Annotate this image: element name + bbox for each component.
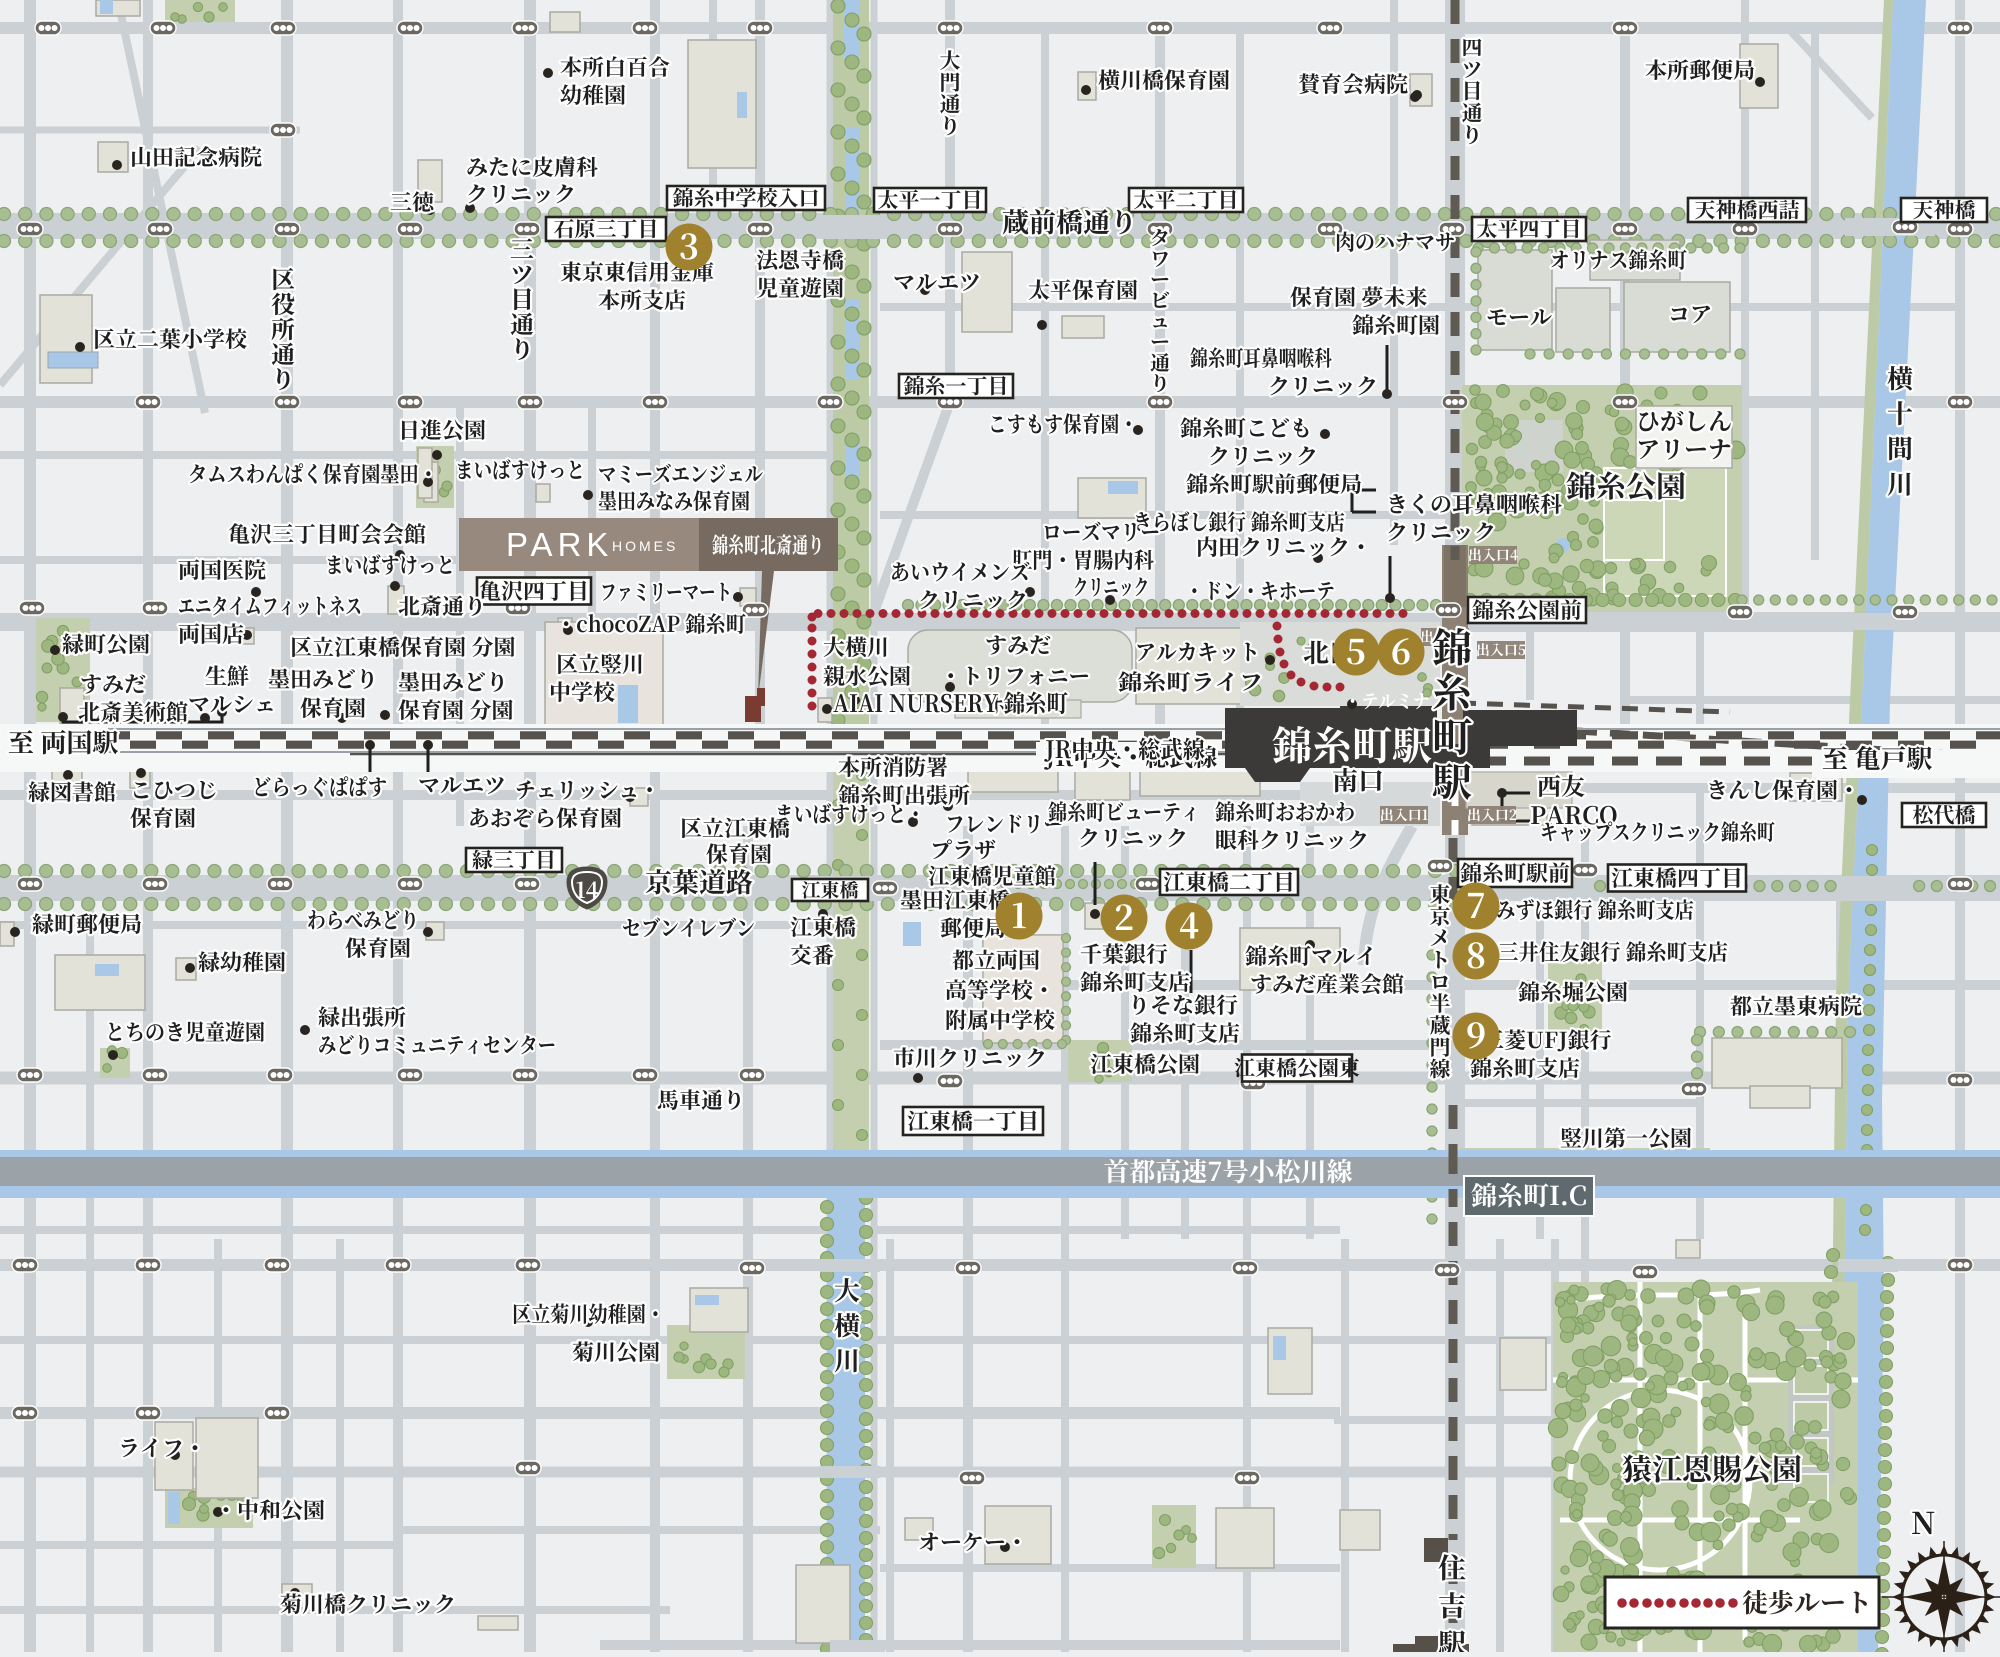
svg-text:緑町郵便局: 緑町郵便局 (32, 908, 142, 939)
svg-text:こひつじ: こひつじ (130, 774, 218, 805)
svg-text:錦糸町ライフ: 錦糸町ライフ (1118, 666, 1263, 697)
svg-text:本所郵便局: 本所郵便局 (1645, 54, 1755, 85)
svg-text:竪川第一公園: 竪川第一公園 (1560, 1122, 1692, 1153)
svg-text:14: 14 (575, 874, 598, 905)
svg-text:太平二丁目: 太平二丁目 (1134, 185, 1239, 215)
svg-text:タワービュー通り: タワービュー通り (1150, 222, 1170, 397)
svg-text:マルエツ: マルエツ (893, 266, 981, 297)
svg-text:アリーナ: アリーナ (1636, 430, 1732, 465)
svg-text:眼科クリニック: 眼科クリニック (1215, 824, 1369, 855)
svg-text:墨田江東橋: 墨田江東橋 (900, 884, 1010, 915)
svg-text:錦糸公園前: 錦糸公園前 (1472, 594, 1582, 625)
svg-text:すみだ産業会館: すみだ産業会館 (1250, 968, 1404, 999)
svg-text:菊川公園: 菊川公園 (572, 1336, 660, 1367)
svg-text:とちのき児童遊園: とちのき児童遊園 (105, 1016, 265, 1047)
svg-text:三ツ目通り: 三ツ目通り (510, 230, 534, 365)
svg-text:わらべみどり: わらべみどり (307, 904, 419, 935)
svg-text:コア: コア (1668, 298, 1712, 329)
svg-text:法恩寺橋: 法恩寺橋 (756, 244, 844, 275)
svg-text:あおぞら保育園: あおぞら保育園 (468, 802, 622, 833)
svg-text:クリニック: クリニック (466, 178, 576, 209)
svg-text:江東橋公園: 江東橋公園 (1090, 1048, 1200, 1079)
svg-text:オーケー・: オーケー・ (918, 1526, 1028, 1557)
svg-text:大門通り: 大門通り (940, 45, 961, 141)
svg-text:緑三丁目: 緑三丁目 (472, 845, 556, 875)
svg-text:こすもす保育園・: こすもす保育園・ (988, 408, 1138, 439)
svg-text:横十間川: 横十間川 (1887, 359, 1914, 501)
svg-text:附属中学校: 附属中学校 (945, 1004, 1056, 1035)
svg-text:賛育会病院: 賛育会病院 (1298, 68, 1408, 99)
svg-text:両国店: 両国店 (178, 618, 244, 649)
svg-text:・テルミナ: ・テルミナ (1344, 687, 1430, 714)
svg-text:緑出張所: 緑出張所 (318, 1001, 406, 1032)
svg-text:まいばすけっと: まいばすけっと (455, 454, 585, 485)
svg-text:至 亀戸駅: 至 亀戸駅 (1822, 739, 1933, 776)
svg-text:三菱UFJ銀行: 三菱UFJ銀行 (1482, 1024, 1612, 1055)
svg-text:大横川: 大横川 (823, 631, 889, 662)
svg-text:出入口5: 出入口5 (1476, 640, 1526, 660)
svg-text:2: 2 (1114, 891, 1134, 940)
svg-text:錦糸町こども: 錦糸町こども (1180, 412, 1312, 443)
svg-text:ライフ・: ライフ・ (118, 1432, 206, 1463)
svg-text:三井住友銀行 錦糸町支店: 三井住友銀行 錦糸町支店 (1498, 936, 1728, 967)
svg-text:保育園: 保育園 (345, 932, 411, 963)
svg-text:錦糸中学校入口: 錦糸中学校入口 (673, 183, 820, 213)
svg-text:江東橋公園東: 江東橋公園東 (1234, 1053, 1360, 1083)
svg-text:墨田みどり: 墨田みどり (398, 666, 508, 697)
svg-text:墨田みなみ保育園: 墨田みなみ保育園 (598, 485, 750, 516)
svg-text:きくの耳鼻咽喉科: きくの耳鼻咽喉科 (1386, 488, 1562, 519)
svg-text:錦糸町I.C: 錦糸町I.C (1471, 1176, 1587, 1213)
svg-text:錦糸町マルイ: 錦糸町マルイ (1245, 940, 1377, 971)
svg-text:まいばすけっと・: まいばすけっと・ (775, 798, 925, 829)
svg-text:馬車通り: 馬車通り (657, 1084, 745, 1115)
svg-text:クリニック: クリニック (1268, 370, 1378, 401)
svg-text:区立二葉小学校: 区立二葉小学校 (93, 323, 248, 354)
svg-text:太平四丁目: 太平四丁目 (1477, 214, 1582, 244)
svg-text:6: 6 (1391, 625, 1411, 674)
svg-text:猿江恩賜公園: 猿江恩賜公園 (1622, 1445, 1802, 1489)
svg-text:きんし保育園・: きんし保育園・ (1706, 774, 1860, 805)
svg-text:南口: 南口 (1332, 761, 1384, 798)
svg-text:緑幼稚園: 緑幼稚園 (198, 946, 286, 977)
svg-text:4: 4 (1179, 899, 1199, 948)
svg-text:太平一丁目: 太平一丁目 (878, 185, 983, 215)
svg-text:首都高速7号小松川線: 首都高速7号小松川線 (1103, 1152, 1352, 1189)
svg-text:あいウイメンズ: あいウイメンズ (890, 556, 1030, 587)
svg-text:徒歩ルート: 徒歩ルート (1742, 1583, 1872, 1620)
svg-text:至 両国駅: 至 両国駅 (8, 723, 119, 760)
svg-text:・中和公園: ・中和公園 (215, 1494, 325, 1525)
svg-text:・chocoZAP 錦糸町: ・chocoZAP 錦糸町 (556, 608, 746, 639)
svg-text:山田記念病院: 山田記念病院 (130, 141, 262, 172)
svg-text:3: 3 (679, 220, 699, 269)
svg-text:東京メトロ半蔵門線: 東京メトロ半蔵門線 (1430, 879, 1452, 1084)
svg-text:7: 7 (1466, 879, 1486, 928)
svg-text:出入口4: 出入口4 (1468, 545, 1518, 565)
svg-text:モール: モール (1486, 301, 1552, 332)
svg-text:両国医院: 両国医院 (178, 554, 266, 585)
svg-text:5: 5 (1346, 625, 1366, 674)
svg-text:都立両国: 都立両国 (952, 944, 1040, 975)
svg-text:錦糸町耳鼻咽喉科: 錦糸町耳鼻咽喉科 (1190, 342, 1332, 373)
svg-text:区立竪川: 区立竪川 (556, 648, 644, 679)
svg-text:江東橋一丁目: 江東橋一丁目 (907, 1105, 1039, 1136)
svg-text:出入口1: 出入口1 (1380, 805, 1429, 825)
svg-text:菊川橋クリニック: 菊川橋クリニック (280, 1588, 456, 1619)
svg-text:オリナス錦糸町: オリナス錦糸町 (1550, 244, 1687, 275)
svg-text:江東橋四丁目: 江東橋四丁目 (1611, 862, 1743, 893)
svg-text:みずほ銀行 錦糸町支店: みずほ銀行 錦糸町支店 (1496, 894, 1694, 925)
svg-text:錦糸町北斎通り: 錦糸町北斎通り (712, 529, 824, 560)
svg-text:エニタイムフィットネス: エニタイムフィットネス (178, 590, 362, 621)
svg-text:交番: 交番 (790, 939, 834, 970)
svg-text:どらっぐぱぱす: どらっぐぱぱす (252, 771, 387, 802)
svg-text:保育園 分園: 保育園 分園 (398, 694, 514, 725)
svg-text:区立菊川幼稚園・: 区立菊川幼稚園・ (512, 1298, 665, 1329)
svg-text:錦糸町駅: 錦糸町駅 (1430, 617, 1474, 808)
svg-text:緑図書館: 緑図書館 (28, 776, 116, 807)
svg-text:幼稚園: 幼稚園 (560, 79, 626, 110)
svg-text:クリニック: クリニック (1073, 571, 1149, 602)
svg-text:チェリッシュ・: チェリッシュ・ (515, 774, 660, 805)
svg-text:錦糸一丁目: 錦糸一丁目 (904, 371, 1009, 401)
svg-text:錦糸町支店: 錦糸町支店 (1130, 1017, 1240, 1048)
svg-text:錦糸堀公園: 錦糸堀公園 (1518, 976, 1628, 1007)
svg-text:クリニック: クリニック (1078, 822, 1188, 853)
svg-text:クリニック: クリニック (1208, 440, 1318, 471)
svg-text:PARK: PARK (506, 526, 613, 563)
svg-text:墨田みどり: 墨田みどり (268, 663, 378, 694)
svg-text:JR中央・総武線: JR中央・総武線 (1044, 730, 1205, 765)
svg-text:9: 9 (1466, 1009, 1486, 1058)
svg-text:内田クリニック・: 内田クリニック・ (1196, 531, 1372, 562)
svg-text:すみだ: すみだ (80, 668, 146, 699)
svg-text:HOMES: HOMES (612, 538, 678, 554)
svg-text:りそな銀行: りそな銀行 (1128, 989, 1238, 1020)
svg-text:すみだ: すみだ (985, 629, 1051, 660)
svg-text:蔵前橋通り: 蔵前橋通り (1002, 201, 1137, 240)
svg-text:緑町公園: 緑町公園 (62, 628, 150, 659)
svg-text:中学校: 中学校 (549, 676, 616, 707)
svg-text:8: 8 (1466, 929, 1486, 978)
svg-text:保育園: 保育園 (300, 692, 366, 723)
svg-text:区役所通り: 区役所通り (271, 260, 295, 395)
svg-text:生鮮: 生鮮 (205, 660, 249, 691)
svg-text:錦糸町おおかわ: 錦糸町おおかわ (1215, 796, 1355, 827)
svg-text:都立墨東病院: 都立墨東病院 (1730, 990, 1862, 1021)
svg-text:大横川: 大横川 (834, 1271, 861, 1378)
svg-text:江東橋二丁目: 江東橋二丁目 (1163, 866, 1295, 897)
svg-text:保育園: 保育園 (130, 802, 196, 833)
svg-text:四ツ目通り: 四ツ目通り (1462, 32, 1483, 149)
svg-text:亀沢四丁目: 亀沢四丁目 (479, 575, 589, 606)
svg-text:北斎通り: 北斎通り (398, 590, 486, 621)
svg-text:児童遊園: 児童遊園 (756, 272, 844, 303)
svg-text:肉のハナマサ: 肉のハナマサ (1335, 226, 1455, 257)
svg-text:ローズマリー: ローズマリー (1042, 516, 1160, 547)
svg-text:出入口2: 出入口2 (1467, 805, 1517, 825)
svg-text:日進公園: 日進公園 (398, 414, 486, 445)
svg-text:松代橋: 松代橋 (1913, 800, 1976, 830)
svg-text:まいばすけっと: まいばすけっと (325, 549, 455, 580)
svg-text:千葉銀行: 千葉銀行 (1080, 938, 1168, 969)
svg-text:アルカキット: アルカキット (1135, 636, 1260, 667)
svg-text:江東橋: 江東橋 (790, 911, 856, 942)
svg-text:天神橋: 天神橋 (1913, 195, 1976, 225)
svg-text:マルシェ: マルシェ (188, 688, 276, 719)
svg-text:ファミリーマート: ファミリーマート (600, 576, 732, 607)
svg-text:みどりコミュニティセンター: みどりコミュニティセンター (318, 1029, 556, 1060)
svg-text:太平保育園: 太平保育園 (1028, 274, 1138, 305)
svg-text:キャップスクリニック錦糸町: キャップスクリニック錦糸町 (1540, 816, 1775, 847)
svg-text:錦糸町駅前郵便局: 錦糸町駅前郵便局 (1186, 468, 1362, 499)
svg-text:市川クリニック: 市川クリニック (893, 1042, 1047, 1073)
svg-text:天神橋西詰: 天神橋西詰 (1695, 195, 1800, 225)
svg-text:AIAI NURSERY 錦糸町: AIAI NURSERY 錦糸町 (833, 684, 1068, 719)
svg-text:1: 1 (1011, 889, 1027, 938)
svg-text:N: N (1911, 1499, 1935, 1543)
svg-text:セブンイレブン: セブンイレブン (622, 912, 755, 943)
svg-text:タムスわんぱく保育園墨田・: タムスわんぱく保育園墨田・ (188, 458, 438, 489)
svg-text:クリニック: クリニック (1386, 516, 1496, 547)
svg-text:錦糸町園: 錦糸町園 (1352, 309, 1440, 340)
svg-text:錦糸公園: 錦糸公園 (1566, 462, 1686, 506)
svg-text:区立江東橋保育園 分園: 区立江東橋保育園 分園 (290, 631, 516, 662)
svg-text:横川橋保育園: 横川橋保育園 (1098, 64, 1230, 95)
svg-text:亀沢三丁目町会会館: 亀沢三丁目町会会館 (228, 518, 426, 549)
svg-text:京葉道路: 京葉道路 (645, 861, 753, 900)
svg-text:三徳: 三徳 (390, 186, 436, 217)
svg-text:本所白百合: 本所白百合 (560, 51, 670, 82)
svg-text:・ドン・キホーテ: ・ドン・キホーテ (1185, 575, 1335, 606)
svg-text:保育園 夢未来: 保育園 夢未来 (1290, 281, 1428, 312)
svg-text:江東橋: 江東橋 (801, 876, 858, 903)
svg-text:マルエツ: マルエツ (418, 769, 506, 800)
svg-text:本所消防署: 本所消防署 (838, 751, 948, 782)
svg-text:本所支店: 本所支店 (598, 284, 686, 315)
svg-text:クリニック: クリニック (918, 584, 1028, 615)
svg-text:住吉駅: 住吉駅 (1437, 1547, 1466, 1652)
svg-text:石原三丁目: 石原三丁目 (554, 214, 659, 244)
svg-text:高等学校・: 高等学校・ (945, 974, 1055, 1005)
